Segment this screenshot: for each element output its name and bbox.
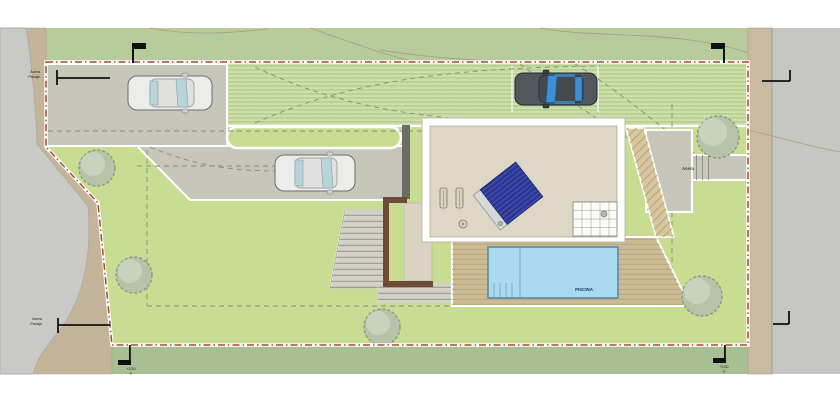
tree <box>79 150 115 186</box>
side-window <box>555 74 575 77</box>
windshield <box>546 76 557 103</box>
sidewalk-right-strip <box>748 28 772 374</box>
grass-paver-driveway <box>227 64 748 126</box>
street-label-top-2: Pasaje <box>28 75 40 79</box>
rear-window <box>295 160 303 186</box>
car-dark <box>515 70 597 108</box>
pool: PISCINA <box>488 247 618 298</box>
rear-window <box>575 77 582 101</box>
road-right <box>772 28 840 374</box>
planting-island <box>227 127 401 148</box>
street-label-bottom-1: Acera <box>32 317 43 321</box>
terrain-outer-strip <box>0 347 772 374</box>
car-silver-2 <box>275 152 355 194</box>
garden-wall <box>402 125 410 199</box>
skylight <box>573 202 617 236</box>
sidewalk-label-right: Acera <box>682 166 694 171</box>
windshield <box>321 158 333 188</box>
mirror <box>182 109 188 113</box>
mirror <box>182 73 188 77</box>
street-label-bottom-2: Pasaje <box>30 322 42 326</box>
entry-wall-left <box>383 197 389 287</box>
survey-marker-label-right: +3.50 <box>719 365 728 369</box>
mirror <box>327 190 333 194</box>
side-window <box>555 101 575 104</box>
house <box>422 118 625 242</box>
tree <box>364 309 400 345</box>
mirror <box>543 104 549 108</box>
site-plan-canvas: Acera PISCINA <box>0 0 840 406</box>
courtyard-planter <box>389 203 404 281</box>
pool-label: PISCINA <box>575 287 594 292</box>
skylight-dome <box>601 211 607 217</box>
street-label-top-1: Acera <box>30 70 41 74</box>
round-vent-cap <box>462 223 465 226</box>
tree <box>116 257 152 293</box>
entry-wall-bottom <box>383 281 433 287</box>
tree <box>697 116 739 158</box>
side-access-path: Acera <box>682 155 748 180</box>
survey-marker-label-left-2: m <box>130 372 133 376</box>
mirror <box>327 152 333 156</box>
site-plan-drawing: Acera PISCINA <box>0 0 840 406</box>
tree <box>682 276 722 316</box>
rear-window <box>150 81 158 105</box>
survey-marker-label-right-2: m <box>723 370 726 374</box>
car-silver-1 <box>128 73 212 113</box>
survey-marker-label-left: +3.50 <box>126 367 135 371</box>
mirror <box>543 70 549 74</box>
windshield <box>176 79 188 107</box>
